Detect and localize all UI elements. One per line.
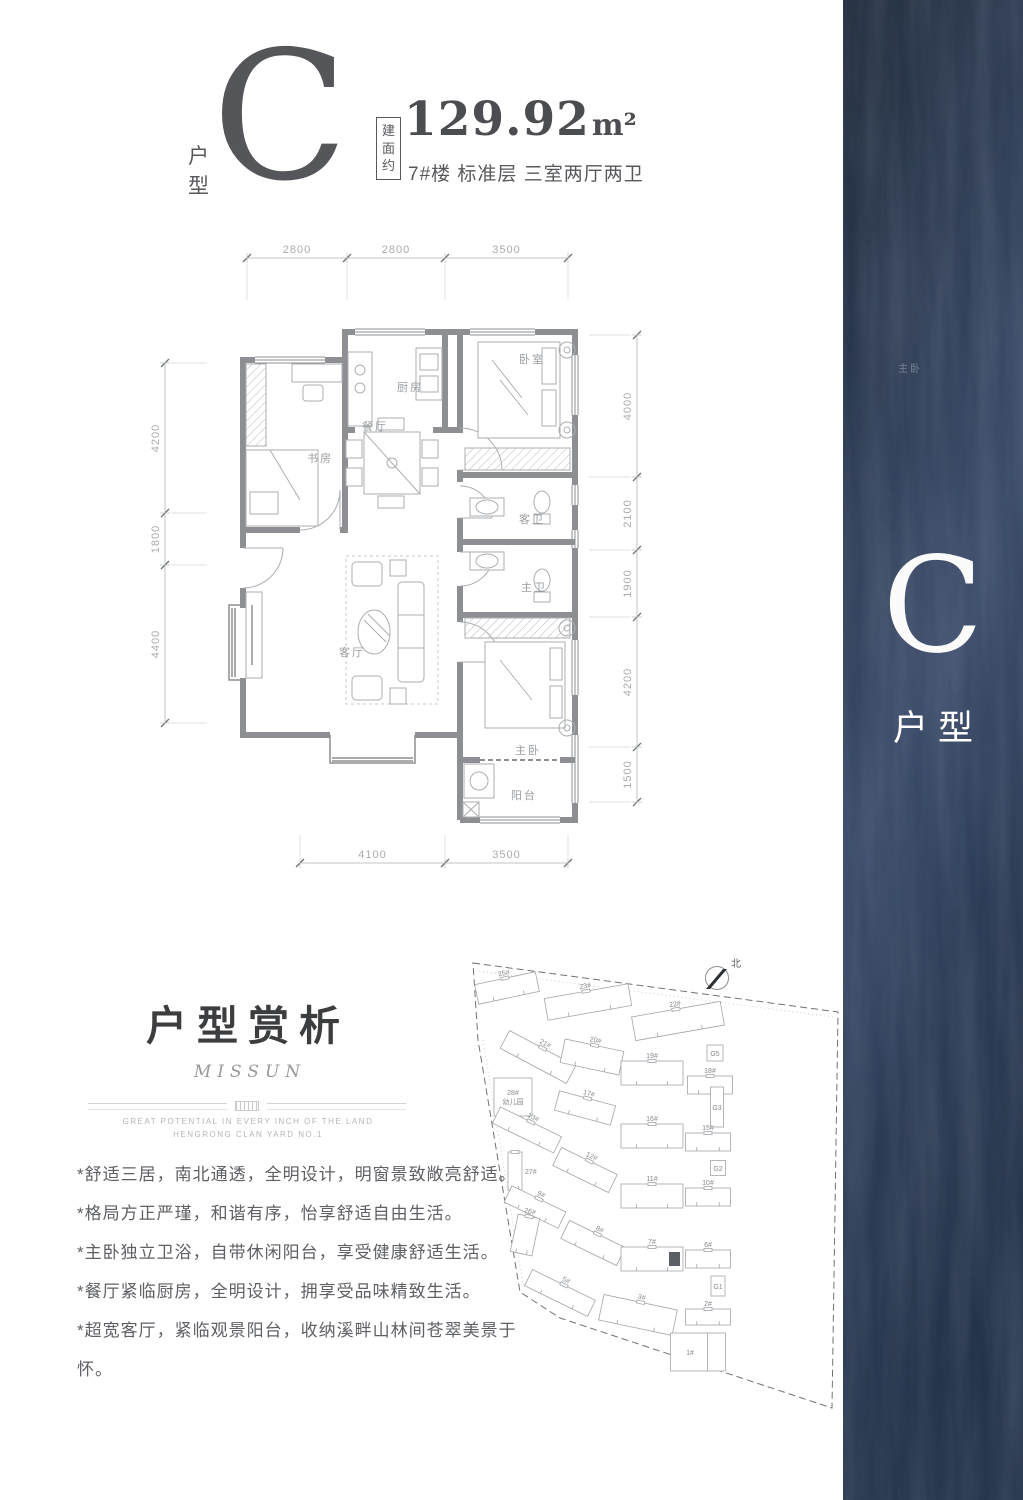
room-label-kitchen: 厨房 [397,381,423,394]
building-G2: G2 [711,1161,726,1176]
room-label-master-bedroom: 主卧 [515,744,541,757]
svg-text:6#: 6# [704,1242,712,1249]
banner-unit-letter: C [843,540,1023,672]
dim-label: 3500 [492,244,520,256]
dim-label: 4400 [150,630,162,658]
building-G5: G5 [707,1045,723,1061]
building-1#: 1# [671,1333,726,1371]
dim-label: 4000 [622,392,634,420]
dim-label: 4200 [150,424,162,452]
building-2#: 2# [686,1301,731,1325]
unit-letter-large: C [212,28,348,206]
tagline-line2: HENGRONG CLAN YARD NO.1 [90,1130,406,1139]
north-label: 北 [731,958,741,970]
svg-text:G2: G2 [713,1166,722,1173]
building-5#: 5# [525,1262,599,1316]
dim-label: 2100 [622,499,634,527]
building-25#: 25# [473,964,539,1004]
feature-bullet: *超宽客厅，紧临观景阳台，收纳溪畔山林间苍翠美景于怀。 [77,1311,517,1389]
compass: 北 [706,958,742,990]
site-buildings: 25#23#22#G521#20#19#18#28#幼儿园17#G313#16#… [473,964,733,1371]
room-label-balcony: 阳台 [511,788,537,802]
svg-text:28#: 28# [507,1090,519,1097]
brochure-page: 户型 C 建面约 129.92m² 7#楼 标准层 三室两厅两卫 [0,0,1023,1500]
building-6#: 6# [686,1242,731,1268]
feature-bullet: *主卧独立卫浴，自带休闲阳台，享受健康舒适生活。 [77,1233,517,1272]
dim-label: 2800 [382,244,410,256]
building-G1: G1 [711,1276,725,1296]
svg-text:G3: G3 [712,1105,721,1112]
divider-ornament [235,1101,259,1111]
area-unit: m² [592,108,637,143]
site-plan: 北 25#23#22#G521#20#19#18#28#幼儿园17#G313#1… [455,945,850,1425]
dim-label: 1800 [150,525,162,553]
area-box-label: 建面约 [376,117,401,180]
ornament-divider [88,1101,406,1111]
room-label-dining: 餐厅 [362,419,388,433]
svg-text:18#: 18# [704,1068,716,1075]
banner-unit-type-label: 户型 [843,700,1023,751]
appreciation-title: 户型赏析 [146,992,350,1052]
divider-line-right [267,1103,406,1110]
svg-text:27#: 27# [525,1169,537,1176]
building-17#: 17# [554,1083,617,1125]
building-12#: 12# [553,1140,621,1192]
feature-bullet: *餐厅紧临厨房，全明设计，拥享受品味精致生活。 [77,1272,517,1311]
svg-text:1#: 1# [686,1350,694,1357]
unit-type-label: 户型 [188,142,212,203]
svg-text:19#: 19# [646,1053,658,1060]
dim-label: 2800 [283,244,311,256]
building-22#: 22# [630,993,724,1040]
dim-run-right: 40002100190042001500 [589,331,642,806]
dim-run-top: 280028003500 [243,244,572,300]
svg-text:幼儿园: 幼儿园 [503,1097,524,1106]
building-11#: 11# [621,1176,683,1208]
dim-label: 1500 [622,760,634,788]
side-banner: 主卧 C 户型 [843,0,1023,1500]
banner-watermark: 主卧 [898,360,922,375]
building-8#: 8# [561,1213,629,1265]
room-label-master-bath: 主卫 [521,581,547,594]
svg-text:16#: 16# [646,1116,658,1123]
room-label-living: 客厅 [339,645,365,659]
room-label-study: 书房 [307,452,333,465]
dim-run-bottom: 41003500 [296,835,572,868]
svg-text:15#: 15# [702,1125,714,1132]
building-18#: 18# [688,1068,733,1094]
area-value: 129.92 [404,92,590,147]
building-19#: 19# [621,1053,683,1085]
building-10#: 10# [686,1180,731,1206]
tagline-line1: GREAT POTENTIAL IN EVERY INCH OF THE LAN… [90,1117,406,1126]
building-27#: 27# [508,1151,537,1191]
building-info: 7#楼 标准层 三室两厅两卫 [408,159,644,186]
feature-bullets: *舒适三居，南北通透，全明设计，明窗景致敞亮舒适。*格局方正严瑾，和谐有序，怡享… [77,1155,517,1390]
area-value-row: 129.92m² [404,92,637,147]
feature-bullet: *舒适三居，南北通透，全明设计，明窗景致敞亮舒适。 [77,1155,517,1194]
dim-label: 3500 [492,849,520,861]
building-7#: 7# [621,1239,683,1271]
dim-label: 4100 [358,849,386,861]
building-G3: G3 [711,1087,724,1127]
brand-script: MISSUN [140,1062,360,1082]
building-16#: 16# [621,1116,683,1148]
dim-run-left: 420018004400 [150,359,207,727]
floor-plan: 书房餐厅厨房卧室客卫主卫客厅主卧阳台 280028003500410035004… [140,230,700,890]
room-label-guest-bath: 客卫 [519,512,545,526]
svg-text:11#: 11# [646,1176,657,1183]
building-3#: 3# [599,1287,679,1336]
dim-label: 4200 [622,668,634,696]
room-label-bedroom: 卧室 [519,352,545,366]
feature-bullet: *格局方正严瑾，和谐有序，怡享舒适自由生活。 [77,1194,517,1233]
svg-text:G1: G1 [713,1284,722,1291]
svg-text:7#: 7# [648,1239,656,1246]
svg-text:10#: 10# [702,1180,714,1187]
divider-line-left [88,1103,227,1110]
dim-label: 1900 [622,569,634,597]
svg-text:2#: 2# [704,1301,712,1308]
svg-text:G5: G5 [710,1051,719,1058]
building-15#: 15# [686,1125,731,1151]
